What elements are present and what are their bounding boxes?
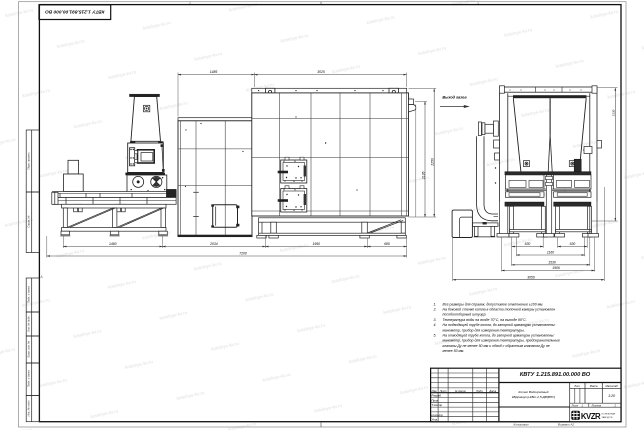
svg-text:1160: 1160 [547,251,554,255]
svg-text:2: 2 [189,1,191,5]
svg-text:Подп. и дата: Подп. и дата [27,286,31,303]
svg-text:клапаны Ду не менее 50 мм и об: клапаны Ду не менее 50 мм и обвод с обра… [443,344,550,348]
svg-text:2034: 2034 [209,242,218,246]
svg-text:Температура воды на входе 70°С: Температура воды на входе 70°С, на выход… [443,318,527,322]
svg-text:Разраб.: Разраб. [432,394,442,398]
svg-text:Подп. и дата: Подп. и дата [27,370,31,387]
svg-text:7200: 7200 [239,252,247,256]
svg-text:№ докум.: № докум. [455,389,467,393]
svg-text:2.: 2. [433,308,437,312]
svg-text:685: 685 [384,242,390,246]
svg-text:1530: 1530 [548,260,556,264]
svg-text:3130: 3130 [612,109,616,116]
svg-text:Лист: Лист [439,389,448,393]
svg-text:3.: 3. [434,318,437,322]
svg-text:1950: 1950 [313,242,321,246]
svg-text:менее 50 мм.: менее 50 мм. [443,349,465,353]
svg-text:манометр, прибор для измерения: манометр, прибор для измерения температу… [443,339,560,343]
svg-text:На подводящей трубе котла, до: На подводящей трубе котла, до запорной а… [443,323,556,327]
svg-text:1460: 1460 [109,242,117,246]
svg-text:630: 630 [570,242,576,246]
svg-text:манометр, прибор для измерения: манометр, прибор для измерения температу… [443,328,525,332]
svg-text:Копировал: Копировал [514,423,529,427]
svg-text:4.: 4. [434,323,437,327]
svg-text:2250: 2250 [431,158,435,167]
svg-text:Т.контр.: Т.контр. [432,403,444,407]
svg-text:1906: 1906 [552,266,560,270]
svg-text:Н.контр.: Н.контр. [432,413,444,417]
svg-text:1:20: 1:20 [608,394,615,398]
svg-text:Инв. № подл.: Инв. № подл. [27,400,31,417]
svg-text:Все размеры для справок, допус: Все размеры для справок, допустимое откл… [443,302,544,306]
svg-text:5.: 5. [434,334,437,338]
svg-text:Взам. инв. №: Взам. инв. № [27,341,31,358]
svg-text:Справ. №: Справ. № [27,216,31,228]
svg-text:Дата: Дата [488,389,496,393]
svg-text:3025: 3025 [317,70,325,74]
svg-text:Котел Водогрейный: Котел Водогрейный [519,390,549,394]
svg-text:3050: 3050 [527,275,535,279]
svg-text:1485: 1485 [210,70,218,74]
svg-text:пособоотборный штуцер.: пособоотборный штуцер. [443,313,487,317]
svg-text:Пров.: Пров. [432,398,440,402]
svg-text:Перв. примен.: Перв. примен. [27,152,31,170]
svg-text:Инв. № дубл.: Инв. № дубл. [27,315,31,332]
svg-text:КВр(мазут)-КВт-2,5-ДВ(ВПУ): КВр(мазут)-КВт-2,5-ДВ(ВПУ) [512,395,555,399]
svg-text:ЗАВОД РФ: ЗАВОД РФ [602,416,613,419]
svg-text:1: 1 [477,1,479,5]
svg-text:Выход газов: Выход газов [442,96,467,100]
svg-text:Масса: Масса [590,384,598,388]
svg-text:Изм.: Изм. [432,389,438,393]
svg-text:Листов: Листов [591,403,602,407]
svg-text:На отводящей трубе котла, до з: На отводящей трубе котла, до запорной ар… [443,334,555,338]
svg-text:630: 630 [525,242,531,246]
svg-text:КВТУ 1.215.891.00.000 ВО: КВТУ 1.215.891.00.000 ВО [520,372,591,378]
svg-text:1.: 1. [434,302,437,306]
svg-text:На боковой стенке котла в обла: На боковой стенке котла в области топочн… [443,308,556,312]
svg-text:КВТУ 1.215.891.00.000 ВО: КВТУ 1.215.891.00.000 ВО [45,8,105,14]
svg-text:Подп.: Подп. [476,389,483,393]
svg-text:Масштаб: Масштаб [606,384,619,388]
svg-text:KVZR: KVZR [581,412,601,421]
svg-text:Формат А2: Формат А2 [558,423,575,427]
svg-text:2135: 2135 [422,172,426,181]
svg-text:Лит.: Лит. [573,384,580,388]
svg-text:Утв.: Утв. [432,418,439,422]
svg-text:Лист: Лист [571,403,580,407]
svg-text:КОТЕЛЬНЫЙ: КОТЕЛЬНЫЙ [602,412,616,415]
